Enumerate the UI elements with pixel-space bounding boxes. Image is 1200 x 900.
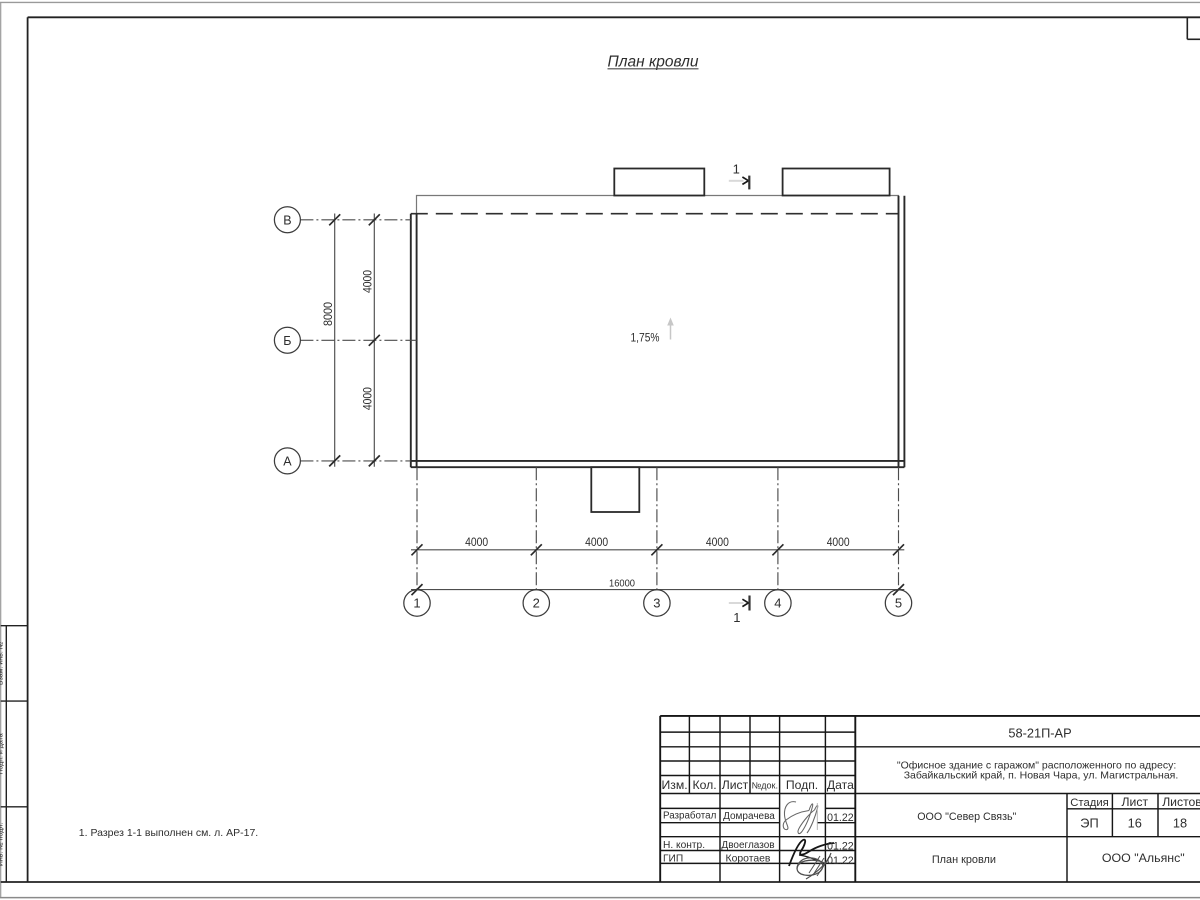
svg-text:Кол.: Кол. bbox=[693, 778, 717, 792]
svg-text:Дата: Дата bbox=[827, 778, 854, 792]
svg-text:4000: 4000 bbox=[827, 537, 850, 549]
svg-text:Подп.: Подп. bbox=[786, 778, 818, 792]
svg-text:1: 1 bbox=[733, 610, 740, 625]
svg-text:3: 3 bbox=[653, 596, 660, 611]
svg-text:Листов: Листов bbox=[1162, 795, 1200, 809]
svg-text:1. Разрез 1-1 выполнен см. л.: 1. Разрез 1-1 выполнен см. л. АР-17. bbox=[79, 827, 258, 839]
svg-text:Домрачева: Домрачева bbox=[723, 811, 775, 822]
svg-text:Подп. и дата: Подп. и дата bbox=[0, 733, 4, 774]
svg-text:Взам. инв. №: Взам. инв. № bbox=[0, 642, 4, 685]
svg-text:01.22: 01.22 bbox=[827, 812, 854, 824]
svg-text:Коротаев: Коротаев bbox=[726, 854, 771, 865]
svg-text:План кровли: План кровли bbox=[932, 854, 996, 866]
svg-text:4: 4 bbox=[774, 596, 781, 611]
svg-text:План кровли: План кровли bbox=[608, 54, 699, 71]
svg-text:Б: Б bbox=[283, 334, 291, 348]
svg-text:Забайкальский край, п. Новая Ч: Забайкальский край, п. Новая Чара, ул. М… bbox=[904, 769, 1179, 781]
svg-text:Изм.: Изм. bbox=[662, 778, 688, 792]
svg-text:4000: 4000 bbox=[465, 537, 488, 549]
svg-text:18: 18 bbox=[1173, 816, 1187, 831]
svg-text:Разработал: Разработал bbox=[663, 811, 717, 822]
svg-text:ООО "Север Связь": ООО "Север Связь" bbox=[917, 811, 1016, 823]
svg-text:4000: 4000 bbox=[585, 537, 608, 549]
svg-text:16: 16 bbox=[1128, 816, 1142, 831]
svg-text:4000: 4000 bbox=[363, 387, 375, 410]
svg-text:5: 5 bbox=[895, 596, 902, 611]
svg-text:58-21П-АР: 58-21П-АР bbox=[1008, 725, 1071, 740]
svg-text:Стадия: Стадия bbox=[1070, 797, 1109, 809]
svg-text:Инв. № подл.: Инв. № подл. bbox=[0, 823, 4, 867]
svg-text:1: 1 bbox=[413, 596, 420, 611]
svg-text:4000: 4000 bbox=[363, 270, 375, 293]
svg-text:01.22: 01.22 bbox=[827, 855, 854, 867]
svg-text:Лист: Лист bbox=[722, 778, 749, 792]
svg-text:ЭП: ЭП bbox=[1080, 816, 1098, 831]
svg-text:2: 2 bbox=[533, 596, 540, 611]
svg-text:1,75%: 1,75% bbox=[631, 331, 660, 345]
svg-text:4000: 4000 bbox=[706, 537, 729, 549]
svg-text:ГИП: ГИП bbox=[663, 853, 683, 864]
svg-text:Лист: Лист bbox=[1122, 795, 1149, 809]
svg-text:В: В bbox=[283, 213, 291, 227]
svg-text:1: 1 bbox=[733, 162, 740, 177]
svg-text:ООО "Альянс": ООО "Альянс" bbox=[1102, 851, 1185, 865]
svg-text:А: А bbox=[283, 454, 292, 468]
svg-text:№док.: №док. bbox=[752, 781, 778, 791]
svg-text:8000: 8000 bbox=[323, 302, 335, 326]
svg-text:01.22: 01.22 bbox=[827, 840, 854, 852]
svg-text:16000: 16000 bbox=[609, 578, 635, 590]
svg-text:Н. контр.: Н. контр. bbox=[663, 840, 705, 851]
svg-text:Двоеглазов: Двоеглазов bbox=[721, 840, 774, 851]
